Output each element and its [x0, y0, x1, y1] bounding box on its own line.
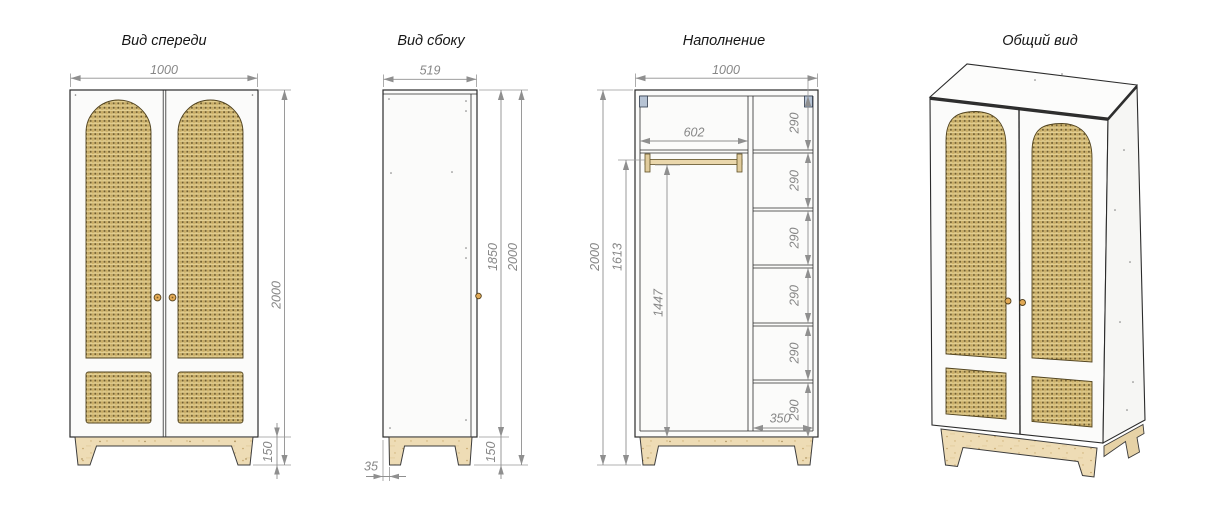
side-cabinet-body [383, 90, 477, 437]
side-wardrobe-drawing [383, 90, 481, 465]
front-right-arch-rattan-panel [178, 100, 243, 358]
front-left-knob-center [157, 297, 159, 299]
interior-rod-height-dim: 1613 [611, 243, 625, 271]
front-right-bottom-rattan-panel [178, 372, 243, 423]
side-base-dim: 150 [484, 442, 498, 463]
side-leg-offset-dim: 35 [364, 460, 378, 474]
overall-view: Общий вид [930, 33, 1145, 477]
overall-right-arch-rattan-panel [1032, 124, 1092, 363]
interior-height-dim: 2000 [588, 243, 602, 272]
interior-width-dim: 1000 [712, 63, 740, 77]
technical-drawing: Вид спереди [0, 0, 1218, 529]
overall-left-door-knob [1005, 298, 1011, 304]
side-door-knob-profile [476, 293, 482, 299]
front-base-dim: 150 [261, 442, 275, 463]
overall-right-bottom-rattan-panel [1032, 377, 1092, 428]
shelf-gap-dim-6: 290 [788, 400, 802, 422]
side-body-height-dim: 1850 [486, 243, 500, 271]
shelf-gap-dim-2: 290 [788, 170, 802, 192]
rod-left-bracket [645, 154, 650, 172]
shelf-gap-dim-3: 290 [788, 228, 802, 250]
overall-left-bottom-rattan-panel [946, 368, 1006, 419]
shelf-gap-dim-1: 290 [788, 113, 802, 135]
rod-right-bracket [737, 154, 742, 172]
interior-rod-opening-dim: 602 [684, 126, 705, 140]
front-view: Вид спереди [70, 33, 291, 479]
interior-cabinet-body [635, 90, 818, 437]
overall-side-face [1103, 86, 1145, 443]
side-height-dim: 2000 [506, 243, 520, 272]
front-left-bottom-rattan-panel [86, 372, 151, 423]
overall-wardrobe-drawing [930, 64, 1145, 477]
front-right-knob-center [172, 297, 174, 299]
drawing-canvas: Вид спереди [0, 0, 1218, 529]
side-depth-dim: 519 [420, 64, 441, 78]
interior-view-title: Наполнение [683, 33, 765, 49]
front-width-dim: 1000 [150, 63, 178, 77]
overall-door-gap [1019, 109, 1020, 434]
interior-view: Наполнение [588, 33, 818, 465]
overall-view-title: Общий вид [1002, 33, 1078, 49]
side-view: Вид сбоку 519 1850 [364, 33, 528, 481]
side-plywood-base-legs [389, 437, 472, 465]
interior-left-corner-bracket [640, 96, 648, 107]
front-view-title: Вид спереди [121, 33, 206, 49]
interior-hanging-height-dim: 1447 [652, 288, 666, 317]
shelf-gap-dim-5: 290 [788, 343, 802, 365]
front-plywood-base-legs [75, 437, 253, 465]
shelf-gap-dim-4: 290 [788, 285, 802, 307]
side-view-title: Вид сбоку [397, 33, 465, 49]
overall-left-arch-rattan-panel [946, 112, 1006, 359]
overall-right-door-knob [1020, 300, 1026, 306]
front-left-arch-rattan-panel [86, 100, 151, 358]
front-wardrobe-drawing [70, 90, 258, 465]
interior-right-corner-bracket [805, 96, 813, 107]
front-height-dim: 2000 [270, 281, 284, 310]
